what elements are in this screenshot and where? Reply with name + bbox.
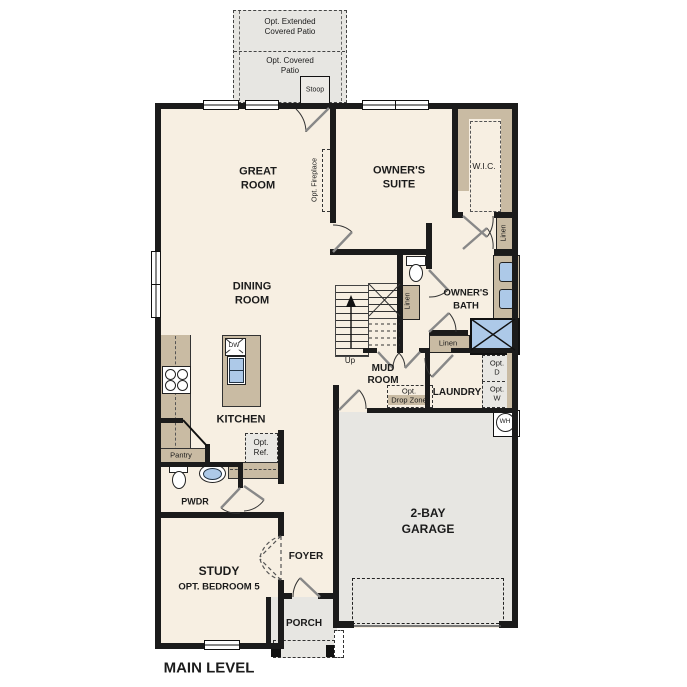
great-room-label-1: GREAT: [239, 167, 277, 178]
opt-drop-zone-label-2: Drop Zone: [391, 396, 426, 404]
wall: [451, 348, 518, 353]
water-heater-label: WH: [500, 419, 511, 426]
island-sink-basin-2: [229, 370, 244, 383]
wall: [419, 348, 430, 353]
patio-inner-dash-right: [341, 11, 342, 101]
owners-bath-label-2: BATH: [453, 301, 479, 311]
opt-ref-label-2: Ref.: [254, 449, 269, 457]
plan-title: MAIN LEVEL: [164, 661, 255, 676]
linen-hall-label: Linen: [501, 224, 508, 241]
study-label-2: OPT. BEDROOM 5: [178, 582, 259, 592]
wall: [278, 593, 292, 599]
wall: [278, 516, 284, 536]
window: [203, 100, 239, 110]
window: [204, 640, 240, 650]
wic-shelf-right: [501, 109, 512, 212]
wall: [429, 330, 468, 335]
wall: [397, 249, 403, 353]
wall: [205, 444, 210, 462]
wall: [266, 597, 271, 643]
window: [151, 251, 161, 285]
patio-inner-dash-left: [239, 11, 240, 101]
owners-suite-label-1: OWNER'S: [373, 166, 425, 177]
kitchen-left-counter: [161, 335, 191, 462]
wall: [426, 223, 432, 269]
opt-ref-label-1: Opt.: [253, 439, 268, 447]
wall: [155, 462, 243, 467]
wall: [159, 418, 183, 423]
cooktop-burner-4: [177, 380, 188, 391]
wic-label: W.I.C.: [472, 162, 495, 171]
window: [245, 100, 279, 110]
study-label-1: STUDY: [199, 565, 240, 577]
wic-shelf-left: [458, 119, 469, 191]
white-mask-below-garage: [337, 628, 518, 650]
porch-label: PORCH: [286, 619, 322, 629]
wall: [278, 580, 284, 649]
wall: [363, 348, 377, 353]
wall: [452, 109, 458, 218]
garage-label-1: 2-BAY: [411, 507, 446, 519]
opt-washer-label-2: W: [493, 394, 500, 402]
owners-suite-label-2: SUITE: [383, 180, 415, 191]
patio-covered-label-2: Patio: [281, 67, 299, 75]
linen-stairs-label: Linen: [405, 292, 412, 309]
wall: [330, 249, 426, 255]
window: [395, 100, 429, 110]
great-room-label-2: ROOM: [241, 181, 275, 192]
opt-dryer-label-1: Opt.: [490, 359, 504, 367]
dining-room-label-2: ROOM: [235, 296, 269, 307]
wall: [155, 103, 161, 649]
foyer-label: FOYER: [289, 552, 323, 562]
garage-door-dash: [352, 578, 504, 624]
wall: [452, 212, 463, 218]
pantry-label: Pantry: [170, 451, 192, 459]
window: [151, 284, 161, 318]
opt-fireplace-label: Opt. Fireplace: [312, 158, 319, 202]
laundry-label: LAUNDRY: [433, 388, 482, 398]
patio-covered-label-1: Opt. Covered: [266, 57, 314, 65]
pwdr-sink-basin: [203, 468, 222, 480]
patio-extended-label-2: Covered Patio: [265, 28, 316, 36]
linen-bath-label: Linen: [439, 339, 457, 347]
garage-opt-door-dash: [334, 630, 344, 658]
opt-washer-label-1: Opt.: [490, 385, 504, 393]
garage-label-2: GARAGE: [402, 523, 455, 535]
wall: [238, 462, 243, 488]
mud-room-label-1: MUD: [372, 364, 395, 374]
kitchen-counter-dashline: [175, 336, 176, 461]
wall: [278, 430, 284, 484]
pwdr-toilet-bowl: [172, 471, 186, 489]
patio-extended-label-1: Opt. Extended: [264, 18, 315, 26]
wall: [155, 512, 284, 518]
wall: [494, 249, 518, 255]
dishwasher-label: DW: [228, 343, 241, 350]
pwdr-label: PWDR: [181, 498, 209, 507]
cooktop-burner-2: [177, 369, 188, 380]
window: [362, 100, 396, 110]
patio-divider-line: [234, 51, 345, 52]
dining-room-label-1: DINING: [233, 282, 272, 293]
stoop-label: Stoop: [306, 87, 324, 94]
wall: [512, 103, 518, 628]
opt-dryer-label-2: D: [494, 368, 499, 376]
cooktop-burner-1: [165, 369, 176, 380]
stairs-lower-run: [335, 285, 369, 357]
owners-bath-label-1: OWNER'S: [443, 288, 488, 298]
kitchen-label: KITCHEN: [217, 415, 266, 426]
opt-drop-zone-label-1: Opt.: [402, 387, 416, 395]
bath-toilet-bowl: [409, 264, 423, 282]
counter-below-ref-dash: [230, 469, 276, 470]
wall: [333, 413, 339, 628]
cooktop-burner-3: [165, 380, 176, 391]
wall: [367, 408, 518, 413]
wall: [333, 385, 339, 413]
wall: [330, 109, 336, 223]
up-label: Up: [345, 357, 355, 365]
floor-plan: Opt. Extended Covered Patio Opt. Covered…: [0, 0, 687, 687]
mud-room-label-2: ROOM: [367, 376, 398, 386]
wall: [494, 212, 518, 218]
wall: [499, 621, 518, 628]
